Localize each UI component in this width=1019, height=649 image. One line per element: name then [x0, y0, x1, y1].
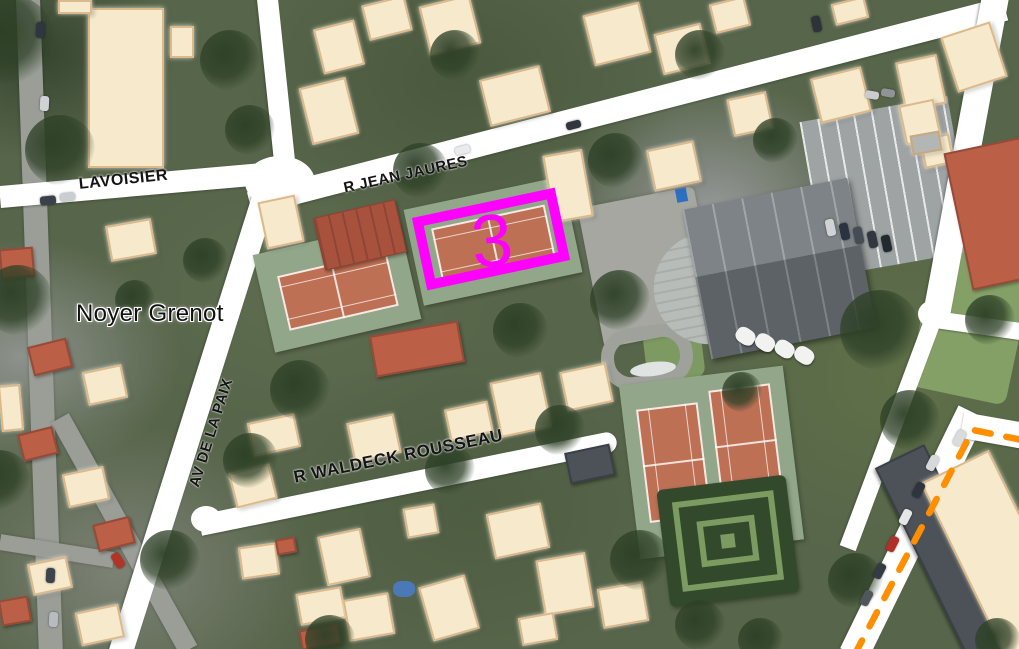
red-roof-building	[0, 596, 32, 627]
hedge-core	[720, 533, 736, 549]
tree	[200, 30, 260, 90]
tree	[140, 530, 200, 590]
tree	[590, 270, 650, 330]
tree	[430, 30, 480, 80]
map-canvas[interactable]: 3 LAVOISIER R JEAN JAURES AV DE LA PAIX …	[0, 0, 1019, 649]
trampoline	[393, 581, 415, 597]
tree	[270, 360, 330, 420]
car	[36, 22, 46, 38]
tree	[223, 433, 278, 488]
red-roof-building	[275, 536, 297, 555]
car	[46, 568, 56, 583]
tree	[965, 295, 1015, 345]
tree	[753, 118, 798, 163]
car	[49, 612, 59, 627]
tree	[183, 238, 228, 283]
place-label-noyer-grenot: Noyer Grenot	[76, 300, 224, 328]
tree	[828, 553, 883, 608]
building	[170, 26, 194, 58]
building	[238, 543, 280, 580]
building	[403, 503, 440, 538]
tree	[610, 530, 670, 590]
tree	[588, 133, 643, 188]
hedge-maze	[656, 475, 799, 608]
road-junction	[191, 506, 221, 532]
tree	[840, 290, 920, 370]
tree	[675, 600, 725, 649]
tree	[675, 30, 725, 80]
car	[40, 195, 57, 206]
tree	[225, 105, 275, 155]
building	[0, 384, 24, 432]
tree	[880, 390, 940, 450]
tree	[722, 372, 762, 412]
building	[536, 552, 595, 616]
car	[40, 96, 50, 111]
blue-container	[675, 187, 688, 203]
car	[60, 192, 76, 202]
tree	[493, 303, 548, 358]
highlight-number: 3	[448, 195, 535, 288]
building	[88, 8, 164, 168]
building	[58, 0, 92, 14]
tree	[535, 405, 585, 455]
road-junction	[918, 300, 950, 328]
